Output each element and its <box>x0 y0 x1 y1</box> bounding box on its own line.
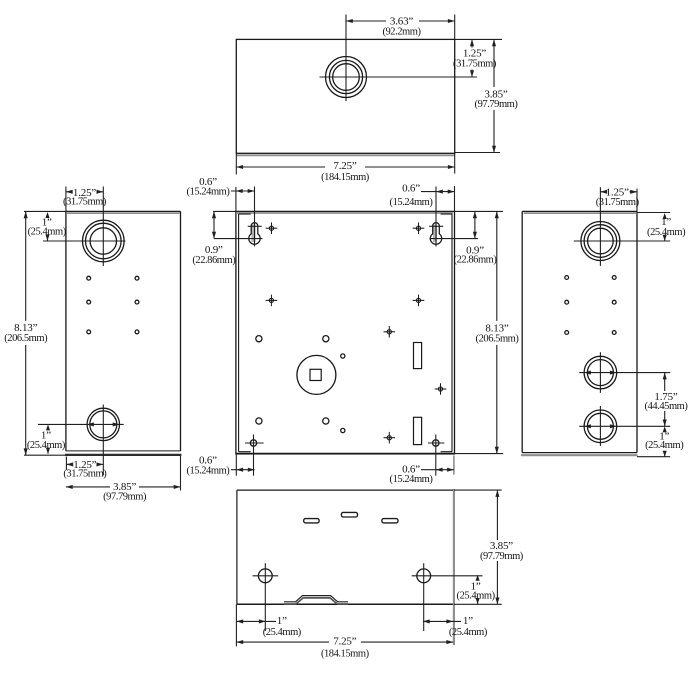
svg-text:(25.4mm): (25.4mm) <box>27 440 66 451</box>
svg-text:(15.24mm): (15.24mm) <box>390 197 434 208</box>
svg-text:(97.79mm): (97.79mm) <box>103 491 147 502</box>
svg-text:(25.4mm): (25.4mm) <box>457 590 496 601</box>
svg-text:(15.24mm): (15.24mm) <box>390 474 434 485</box>
svg-text:(15.24mm): (15.24mm) <box>186 465 230 476</box>
svg-text:(206.5mm): (206.5mm) <box>4 333 48 344</box>
svg-text:(31.75mm): (31.75mm) <box>453 59 497 70</box>
svg-text:(25.4mm): (25.4mm) <box>449 627 488 638</box>
svg-text:1”: 1” <box>277 615 287 627</box>
svg-text:(25.4mm): (25.4mm) <box>645 440 684 451</box>
svg-text:(97.79mm): (97.79mm) <box>480 551 524 562</box>
svg-text:(25.4mm): (25.4mm) <box>647 227 686 238</box>
svg-text:(25.4mm): (25.4mm) <box>263 627 302 638</box>
svg-text:(31.75mm): (31.75mm) <box>63 469 107 480</box>
svg-text:0.6”: 0.6” <box>402 183 420 195</box>
svg-text:1”: 1” <box>463 615 473 627</box>
svg-text:(31.75mm): (31.75mm) <box>596 197 640 208</box>
svg-text:(22.86mm): (22.86mm) <box>454 255 498 266</box>
svg-text:(97.79mm): (97.79mm) <box>475 99 519 110</box>
svg-text:(15.24mm): (15.24mm) <box>187 187 231 198</box>
svg-text:(184.15mm): (184.15mm) <box>321 649 370 660</box>
svg-text:7.25”: 7.25” <box>333 636 356 648</box>
svg-text:7.25”: 7.25” <box>333 160 356 172</box>
svg-text:(184.15mm): (184.15mm) <box>321 172 370 183</box>
svg-text:(22.86mm): (22.86mm) <box>192 255 236 266</box>
svg-text:(206.5mm): (206.5mm) <box>476 333 520 344</box>
svg-text:(44.45mm): (44.45mm) <box>645 401 689 412</box>
svg-text:(25.4mm): (25.4mm) <box>28 227 67 238</box>
svg-text:(31.75mm): (31.75mm) <box>63 196 107 207</box>
svg-text:(92.2mm): (92.2mm) <box>382 26 421 37</box>
